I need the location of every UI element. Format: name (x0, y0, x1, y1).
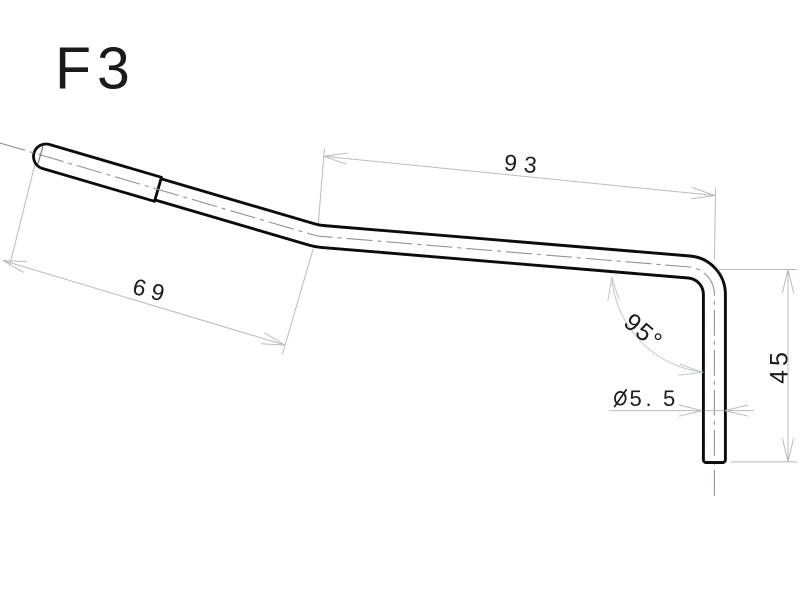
svg-text:F3: F3 (55, 36, 136, 102)
svg-text:5: 5 (630, 386, 642, 411)
svg-text:.: . (646, 386, 652, 411)
svg-text:93: 93 (503, 149, 545, 179)
svg-text:5: 5 (663, 386, 675, 411)
svg-text:45: 45 (766, 348, 794, 384)
